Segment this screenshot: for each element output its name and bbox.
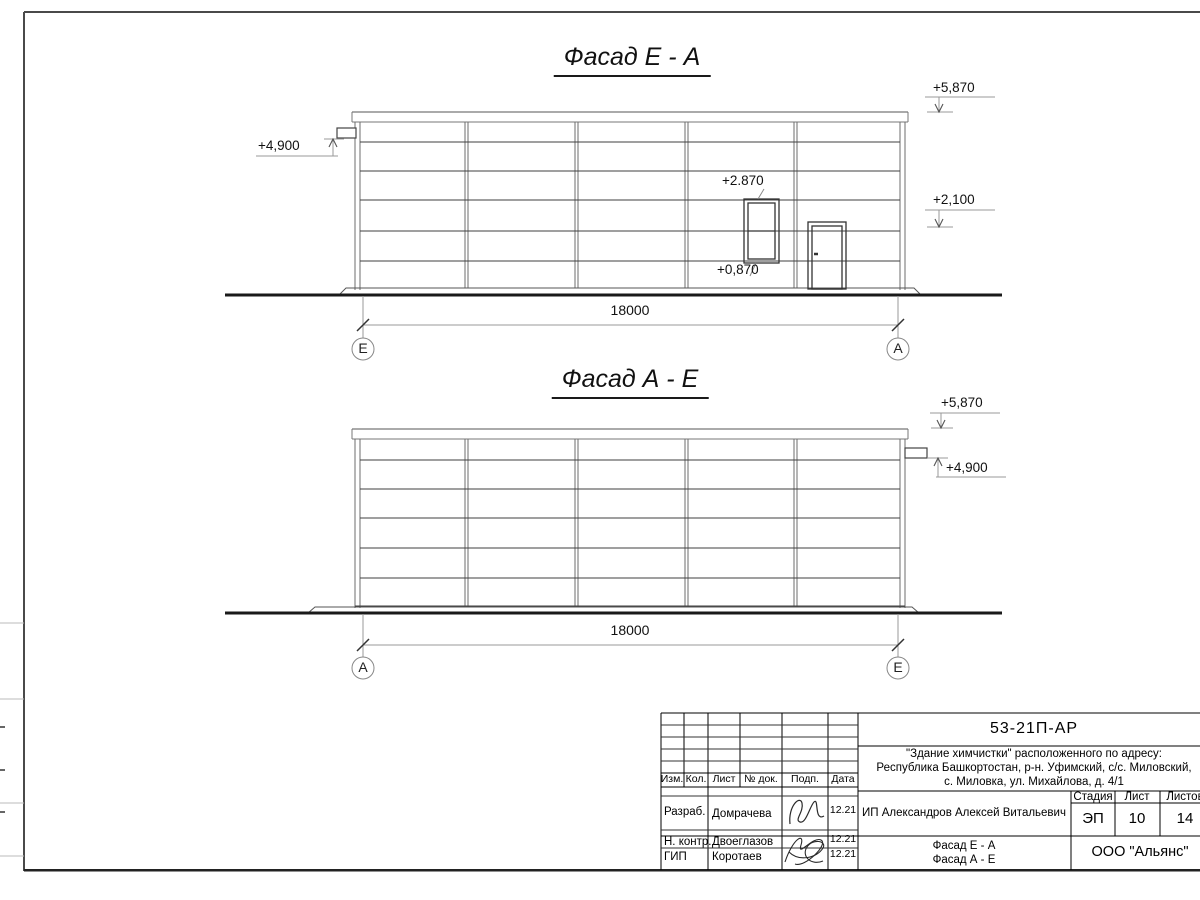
elevation-label-roof-f2: +5,870 [941,396,983,411]
col-izm: Изм. [661,774,684,786]
client-name: ИП Александров Алексей Витальевич [862,807,1066,820]
row-name-gip: Коротаев [712,851,762,864]
row-role-nkontr: Н. контр. [664,836,711,849]
axis-letter-a-f1: А [893,341,902,356]
stage-value: ЭП [1082,811,1104,828]
signature-nkontr-gip [785,838,824,864]
sheet-frame [24,12,1200,871]
panel-joints-f2 [355,460,905,606]
elevation-label-canopy-f1: +4,900 [258,139,300,154]
signature-razrab [790,800,824,824]
row-date-nkontr: 12.21 [830,834,856,846]
col-date: Дата [831,774,854,786]
col-kol: Кол. [686,774,707,786]
mullions-f1 [355,122,905,290]
door-f1 [808,222,846,289]
mullions-f2 [355,439,905,608]
title-facade-ea: Фасад Е - А [554,44,711,77]
canopy-pipe-f1 [337,128,356,138]
stage-label: Стадия [1073,791,1112,804]
panel-joints-f1 [355,142,905,288]
axis-letter-e-f1: Е [358,341,367,356]
row-date-razrab: 12.21 [830,805,856,817]
row-name-razrab: Домрачева [712,808,772,821]
facade-ae-drawing [225,413,1006,679]
company-name: ООО "Альянс" [1092,845,1189,861]
pipe-f2 [905,448,927,458]
elevation-label-roof-f1: +5,870 [933,81,975,96]
row-role-gip: ГИП [664,851,687,864]
axis-letter-a-f2: А [358,660,367,675]
dimension-text-f2: 18000 [611,623,650,638]
sheet-value: 10 [1129,811,1146,828]
col-podp: Подп. [791,774,819,786]
address-line1: "Здание химчистки" расположенного по адр… [906,748,1162,761]
sheets-value: 14 [1177,811,1194,828]
dimension-text-f1: 18000 [611,303,650,318]
elevation-label-mid-f1: +2,100 [933,193,975,208]
address-line2: Республика Башкортостан, р-н. Уфимский, … [876,762,1191,775]
row-role-razrab: Разраб. [664,806,705,819]
content-line2: Фасад А - Е [933,854,996,867]
facade-ea-drawing [225,97,1002,360]
col-list: Лист [713,774,736,786]
elevation-label-pipe-f2: +4,900 [946,461,988,476]
elevation-marks-f1 [256,97,995,227]
axis-letter-e-f2: Е [893,660,902,675]
left-margin-fragments [0,623,24,856]
title-facade-ae: Фасад А - Е [552,366,709,399]
sheets-label: Листов [1166,791,1200,804]
window-top-elevation-f1: +2.870 [722,174,764,189]
row-date-gip: 12.21 [830,849,856,861]
window-bottom-elevation-f1: +0,870 [717,263,759,278]
sheet-label: Лист [1125,791,1150,804]
address-line3: с. Миловка, ул. Михайлова, д. 4/1 [944,776,1124,789]
drawing-sheet: Фасад Е - А Фасад А - Е +5,870 +2,100 +4… [0,0,1200,900]
window-f1 [744,199,779,263]
doc-code: 53-21П-АР [990,720,1078,738]
col-doc: № док. [744,774,778,786]
row-name-nkontr: Двоеглазов [712,836,773,849]
content-line1: Фасад Е - А [933,840,996,853]
